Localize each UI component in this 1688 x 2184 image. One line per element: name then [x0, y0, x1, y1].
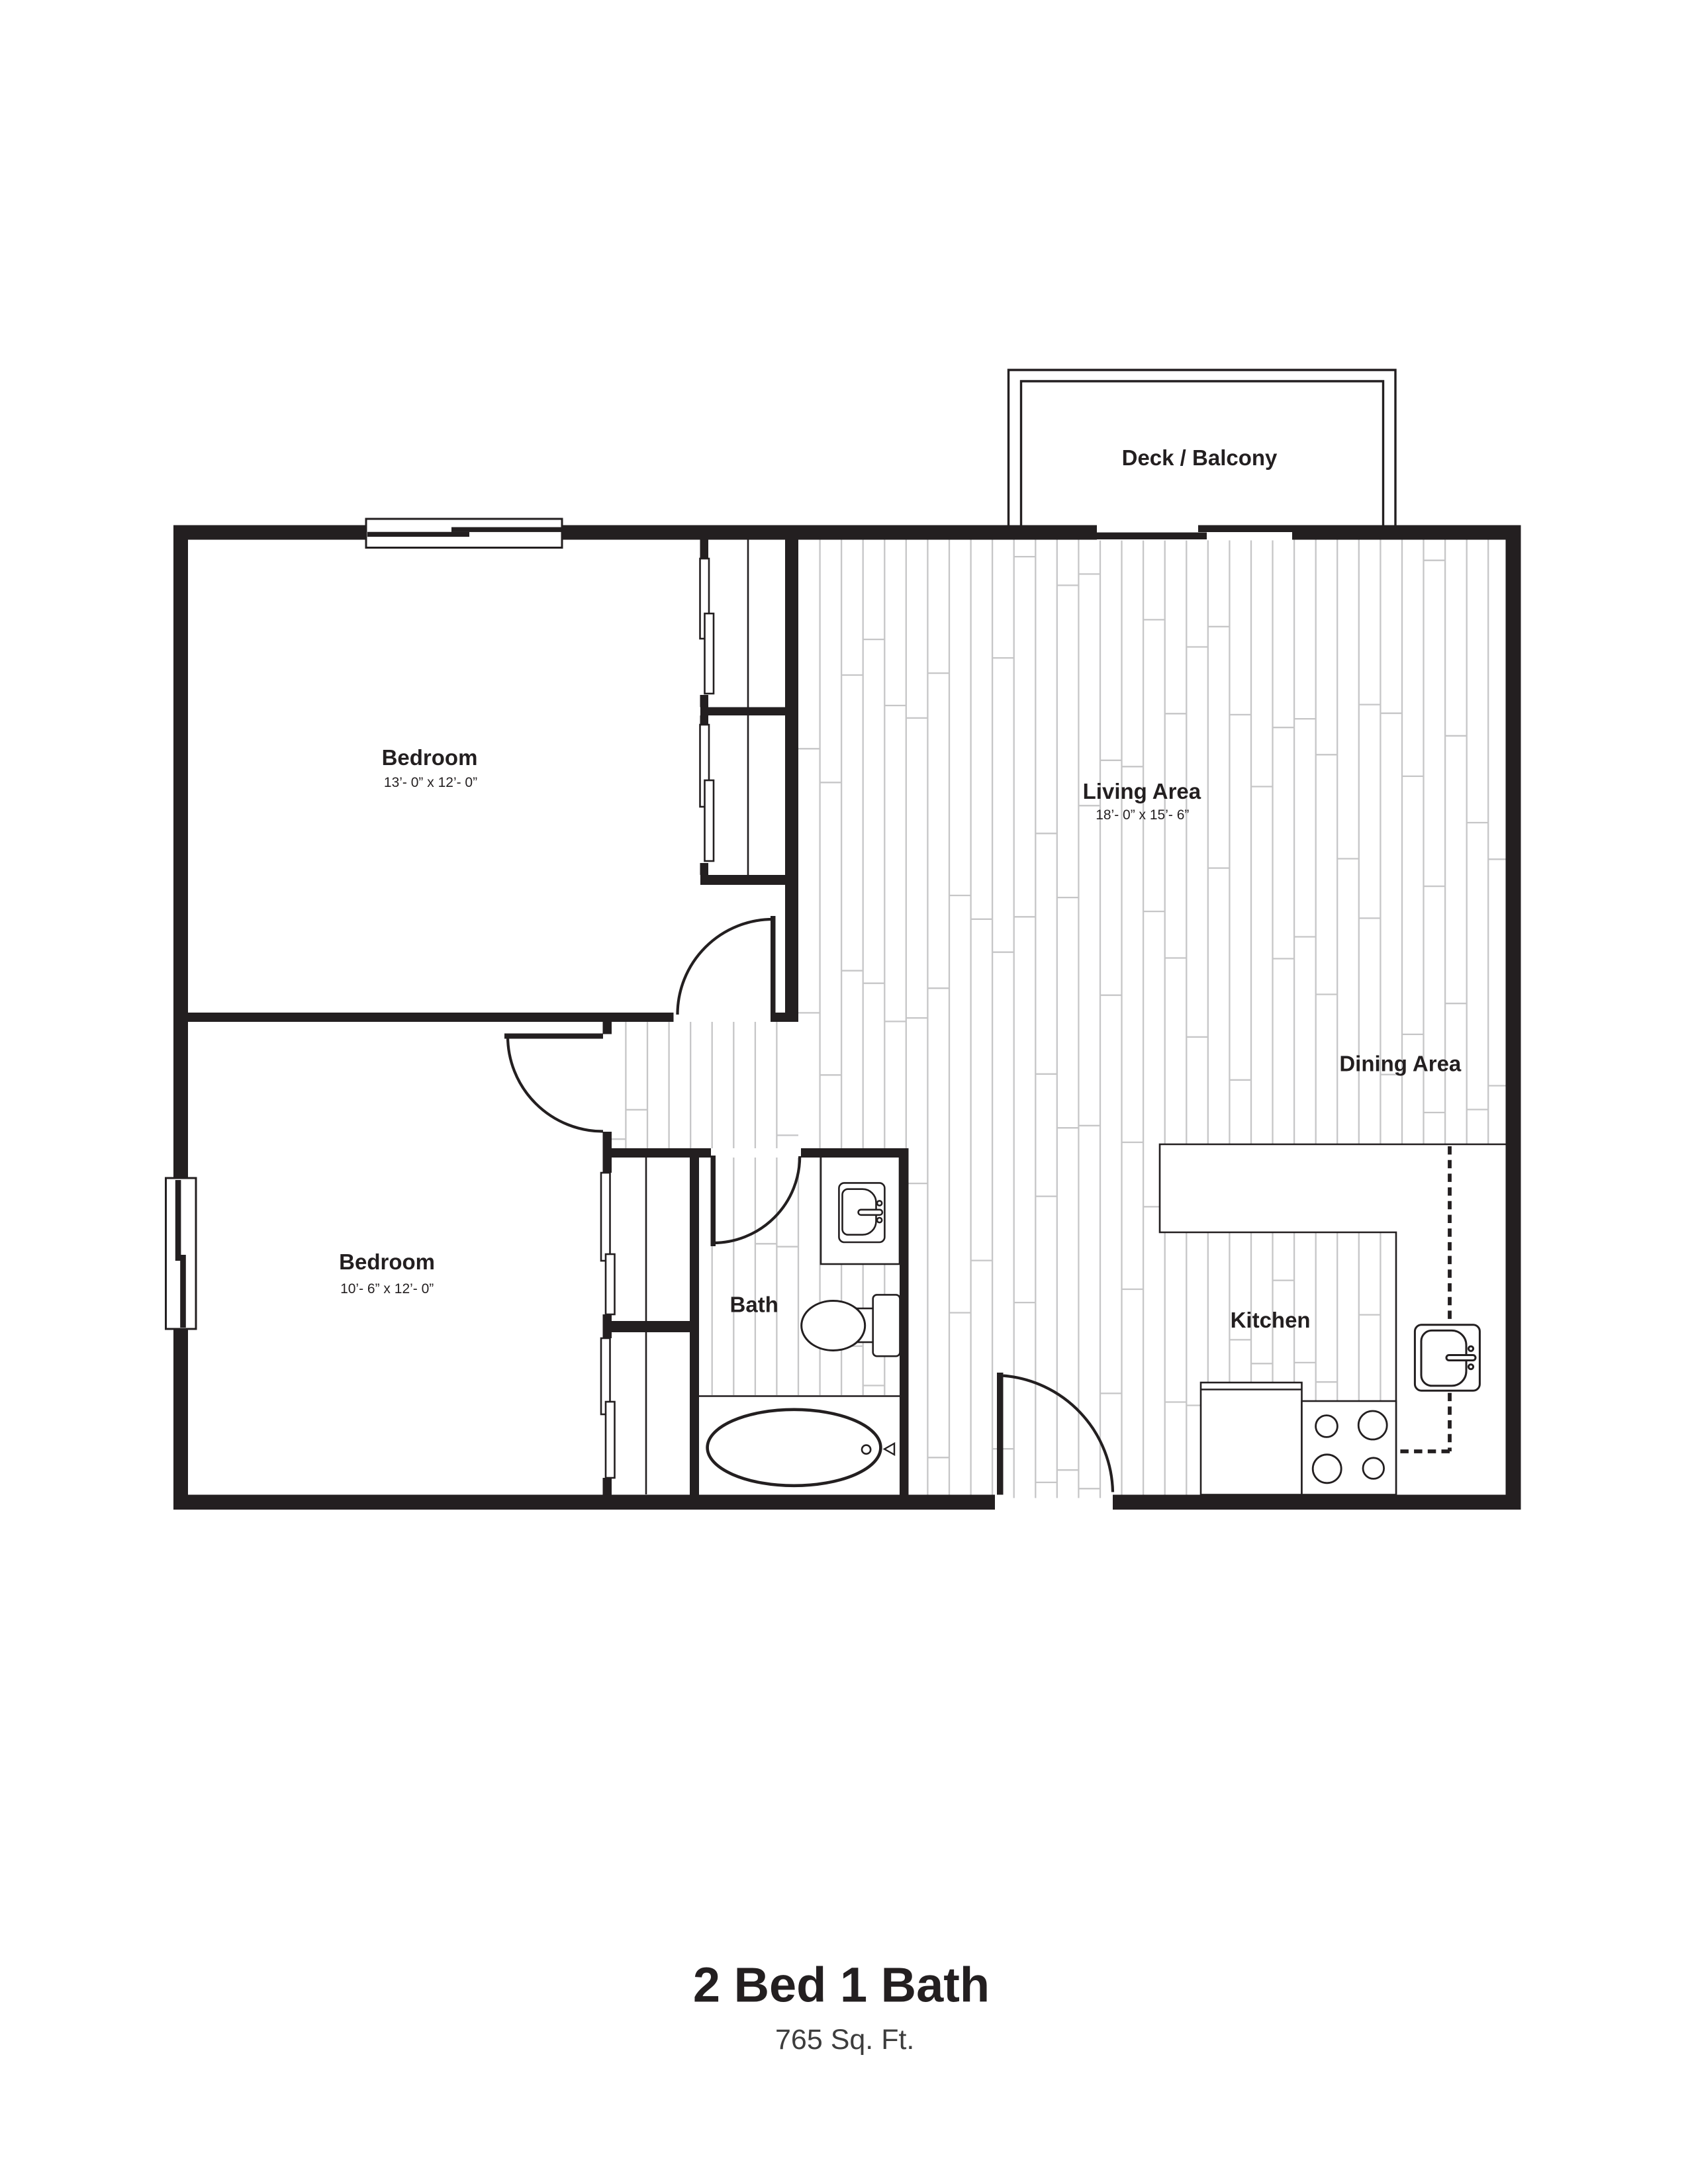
svg-text:Kitchen: Kitchen	[1231, 1308, 1311, 1332]
svg-text:10’- 6” x 12’- 0”: 10’- 6” x 12’- 0”	[340, 1281, 434, 1297]
svg-text:Deck / Balcony: Deck / Balcony	[1122, 445, 1278, 470]
svg-text:Bath: Bath	[730, 1293, 778, 1317]
svg-text:765 Sq. Ft.: 765 Sq. Ft.	[775, 2024, 914, 2056]
svg-text:13’- 0” x 12’- 0”: 13’- 0” x 12’- 0”	[384, 775, 477, 790]
svg-text:Living Area: Living Area	[1083, 779, 1201, 803]
svg-text:Dining Area: Dining Area	[1339, 1052, 1462, 1076]
svg-text:18’- 0” x 15’- 6”: 18’- 0” x 15’- 6”	[1096, 807, 1189, 823]
svg-text:2 Bed 1 Bath: 2 Bed 1 Bath	[693, 1958, 990, 2013]
svg-text:Bedroom: Bedroom	[339, 1250, 435, 1274]
svg-text:Bedroom: Bedroom	[382, 745, 478, 770]
